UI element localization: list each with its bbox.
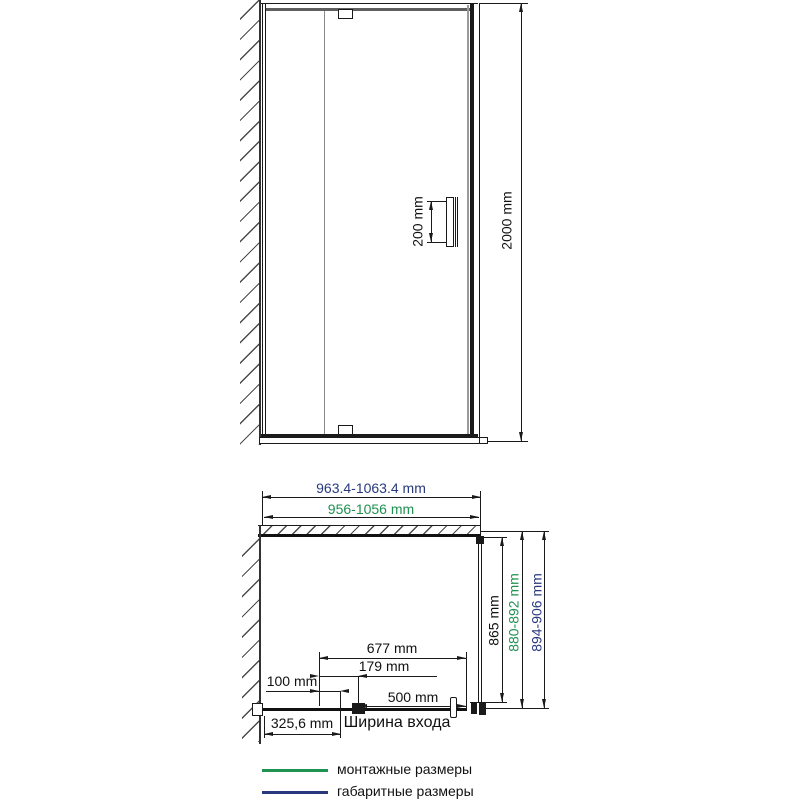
wall-profile-adjust-label: 100 mm (260, 674, 324, 689)
legend-swatch-overall (262, 791, 328, 794)
overall-width-label: 963.4-1063.4 mm (306, 481, 436, 496)
door-handle (446, 197, 454, 247)
depth-ext-top (481, 531, 549, 532)
door-handle-edge-line (457, 197, 458, 247)
legend-swatch-mounting (262, 769, 328, 772)
side-glass-line (478, 537, 479, 703)
entrance-width-value: 500 mm (381, 690, 445, 705)
header-profile-bar (266, 8, 472, 11)
corner-post (479, 702, 486, 715)
dim-arrow (520, 531, 524, 540)
dim-arrow (310, 689, 319, 693)
dim-arrow (542, 699, 546, 708)
frame-right-line (470, 3, 474, 443)
door-handle-edge-line (455, 197, 456, 247)
door-divider-line (324, 11, 325, 434)
dim-arrow (262, 495, 271, 499)
door-glass-width-label: 677 mm (357, 641, 427, 656)
dim-arrow (500, 537, 504, 546)
dim-arrow (429, 201, 433, 210)
wall-profile-adjust-dim-line (266, 691, 340, 692)
overall-depth-label: 894-906 mm (530, 570, 545, 656)
wall-section-top-hatch (258, 526, 481, 534)
hinge-offset-label: 179 mm (352, 659, 416, 674)
handle-dim-tick-top (427, 201, 447, 202)
shower-door-technical-drawing: 200 mm 2000 mm 963.4-1063.4 mm 956-1056 … (0, 0, 800, 800)
side-panel-edge-line (479, 3, 480, 443)
extension-line (262, 491, 263, 526)
dim-arrow (520, 699, 524, 708)
hinge-offset-dim-line (319, 676, 437, 677)
front-glass-line (263, 708, 467, 711)
threshold-sill (259, 437, 488, 444)
fixed-panel-width-dim-line (264, 734, 341, 735)
frame-left-inner-line (265, 3, 266, 443)
frame-top-line (261, 3, 478, 4)
fixed-panel-width-label: 325,6 mm (264, 716, 340, 731)
dim-arrow (500, 693, 504, 702)
wall-profile (252, 703, 263, 716)
dim-arrow (264, 732, 273, 736)
dim-arrow (519, 432, 523, 441)
height-dim-ext-bottom (487, 441, 528, 442)
total-height-label: 2000 mm (500, 181, 515, 261)
legend-label-mounting: монтажные размеры (337, 762, 472, 777)
handle-dim-tick-bottom (427, 242, 447, 243)
mounting-width-label: 956-1056 mm (306, 502, 436, 517)
mounting-width-dim-line (264, 517, 479, 518)
mounting-depth-dim-line (522, 531, 523, 708)
entrance-width-label: Ширина входа (330, 714, 464, 731)
depth-ext-bottom (483, 708, 549, 709)
corner-post (471, 703, 477, 714)
legend-label-overall: габаритные размеры (337, 784, 474, 799)
wall-hatch-left (240, 0, 259, 445)
dim-arrow (519, 3, 523, 12)
pivot-hinge (352, 703, 365, 714)
dim-arrow (429, 233, 433, 242)
extension-line (340, 691, 341, 738)
wall-section-top-face (258, 534, 481, 537)
dim-arrow (340, 689, 349, 693)
extension-line (466, 652, 467, 709)
glass-depth-dim-line (502, 537, 503, 702)
dim-arrow (319, 656, 328, 660)
dim-arrow (358, 674, 367, 678)
extension-line (358, 676, 359, 703)
hinge-top (338, 9, 353, 19)
frame-right-shade-line (467, 5, 469, 437)
handle-height-label: 200 mm (411, 187, 426, 257)
dim-arrow (457, 656, 466, 660)
dim-arrow (470, 515, 479, 519)
dim-arrow (332, 732, 341, 736)
dim-arrow (542, 531, 546, 540)
side-glass-line (481, 537, 482, 703)
frame-left-outer-line (262, 3, 263, 443)
height-dim-line (521, 3, 522, 441)
dim-arrow (264, 515, 273, 519)
glass-depth-label: 865 mm (487, 590, 502, 652)
mounting-depth-label: 880-892 mm (507, 570, 522, 656)
overall-width-dim-line (262, 497, 481, 498)
